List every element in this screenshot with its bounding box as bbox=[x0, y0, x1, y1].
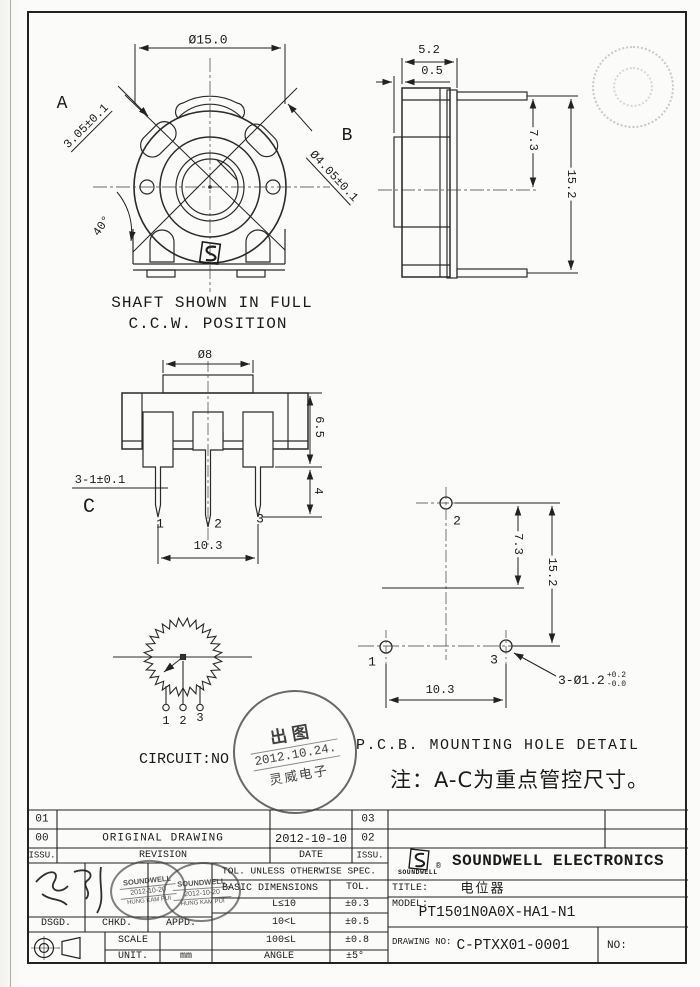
faint-stamp-inner bbox=[613, 67, 653, 107]
pcb-hole-dim: 3-Ø1.2 bbox=[558, 674, 605, 687]
pin-label-c: C bbox=[83, 498, 95, 518]
pin-dim-pitch: 10.3 bbox=[194, 540, 223, 552]
pin-number-2: 2 bbox=[214, 518, 222, 531]
revision-row2-date: 2012-10-10 bbox=[275, 833, 347, 845]
side-dim-step: 0.5 bbox=[421, 65, 443, 77]
front-caption-line1: SHAFT SHOWN IN FULL bbox=[111, 295, 312, 311]
circuit-pin-1: 1 bbox=[162, 715, 169, 727]
header-date: DATE bbox=[299, 851, 323, 861]
side-dim-upper: 7.3 bbox=[527, 127, 539, 153]
tolerance-row-tol: ±0.5 bbox=[345, 918, 369, 928]
pin-number-1: 1 bbox=[156, 518, 164, 531]
side-view-outline bbox=[394, 88, 527, 278]
pin-number-3: 3 bbox=[256, 513, 264, 526]
tolerance-row-tol: ±0.8 bbox=[345, 936, 369, 946]
circuit-caption: CIRCUIT:NO bbox=[139, 752, 229, 767]
tolerance-row-dim: L≤10 bbox=[272, 900, 296, 910]
pin-view-dimensions bbox=[72, 360, 322, 564]
pcb-hole-tolerance: +0.2 -0.0 bbox=[607, 672, 626, 690]
front-outer-diameter-dim: Ø15.0 bbox=[188, 34, 227, 47]
pin-dim-length: 4 bbox=[312, 485, 324, 496]
label-drawing-no: DRAWING NO: bbox=[392, 938, 451, 947]
title-value: 电位器 bbox=[460, 883, 505, 896]
tolerance-col2-header: TOL. bbox=[346, 883, 370, 893]
tolerance-row-dim: ANGLE bbox=[264, 952, 294, 962]
front-label-a: A bbox=[57, 95, 68, 113]
pcb-hole-1: 1 bbox=[368, 656, 376, 669]
front-label-b: B bbox=[342, 127, 353, 145]
front-view-centerlines bbox=[93, 58, 330, 292]
registered-mark: ® bbox=[436, 863, 441, 871]
pin-dim-shaft-dia: Ø8 bbox=[196, 349, 214, 361]
revision-row2-description: ORIGINAL DRAWING bbox=[102, 834, 224, 845]
unit-value: mm bbox=[180, 952, 192, 962]
circuit-pin-3: 3 bbox=[196, 712, 203, 724]
drawing-no-value: C-PTXX01-0001 bbox=[456, 939, 569, 954]
revision-row2-issue2: 02 bbox=[361, 834, 374, 845]
projection-symbol-icon bbox=[31, 936, 80, 960]
pcb-hole-dim-callout: 3-Ø1.2 +0.2 -0.0 bbox=[558, 672, 626, 690]
tolerance-header: TOL. UNLESS OTHERWISE SPEC. bbox=[222, 866, 376, 876]
pcb-view-caption: P.C.B. MOUNTING HOLE DETAIL bbox=[356, 738, 640, 753]
company-name: SOUNDWELL ELECTRONICS bbox=[452, 853, 664, 869]
revision-row2-issue: 00 bbox=[35, 834, 48, 845]
pcb-hole-3: 3 bbox=[490, 654, 498, 667]
designer-signature bbox=[36, 867, 101, 913]
tolerance-row-dim: 10<L bbox=[272, 918, 296, 928]
circuit-symbol bbox=[113, 618, 252, 711]
tolerance-row-tol: ±5° bbox=[346, 952, 364, 962]
tolerance-col1-header: BASIC DIMENSIONS bbox=[222, 884, 318, 894]
front-view-outline bbox=[133, 96, 286, 277]
pcb-dim-upper: 7.3 bbox=[512, 531, 524, 557]
label-chkd: CHKD. bbox=[102, 919, 132, 929]
tolerance-row-dim: 100≤L bbox=[266, 936, 296, 946]
pin-view-outline bbox=[122, 375, 308, 527]
side-dim-depth: 5.2 bbox=[418, 44, 440, 56]
label-no: NO: bbox=[607, 941, 627, 952]
header-issue2: ISSU. bbox=[356, 852, 383, 861]
tolerance-row-tol: ±0.3 bbox=[345, 900, 369, 910]
label-title: TITLE: bbox=[392, 884, 428, 894]
company-logo-text: SOUNDWELL bbox=[398, 870, 438, 877]
drawing-sheet: Ø15.0 A 3.05±0.1 B Ø4.05±0.1 40° SHAFT S… bbox=[0, 0, 700, 987]
key-dimension-note: 注：A-C为重点管控尺寸。 bbox=[390, 770, 649, 791]
pcb-hole-tol-minus: -0.0 bbox=[607, 681, 626, 690]
header-issue: ISSU. bbox=[28, 852, 55, 861]
pcb-dim-pitch: 10.3 bbox=[426, 684, 455, 696]
faint-stamp bbox=[592, 46, 674, 128]
model-value: PT1501N0A0X-HA1-N1 bbox=[419, 906, 576, 921]
company-logo-icon bbox=[409, 849, 429, 870]
side-dim-height: 15.2 bbox=[565, 168, 577, 201]
label-dsgd: DSGD. bbox=[41, 919, 71, 929]
front-caption-line2: C.C.W. POSITION bbox=[128, 316, 287, 332]
side-view-dimensions bbox=[376, 58, 578, 273]
revision-row1-issue: 01 bbox=[35, 815, 48, 826]
pcb-view-dimensions bbox=[382, 503, 560, 708]
pcb-hole-2: 2 bbox=[453, 515, 461, 528]
revision-row1-issue2: 03 bbox=[361, 815, 374, 826]
pin-dim-note: 3-1±0.1 bbox=[75, 474, 125, 486]
pin-dim-body: 6.5 bbox=[313, 414, 325, 440]
label-scale: SCALE bbox=[118, 936, 148, 946]
pcb-dim-height: 15.2 bbox=[546, 556, 558, 589]
circuit-pin-2: 2 bbox=[179, 715, 186, 727]
label-unit: UNIT. bbox=[118, 952, 148, 962]
